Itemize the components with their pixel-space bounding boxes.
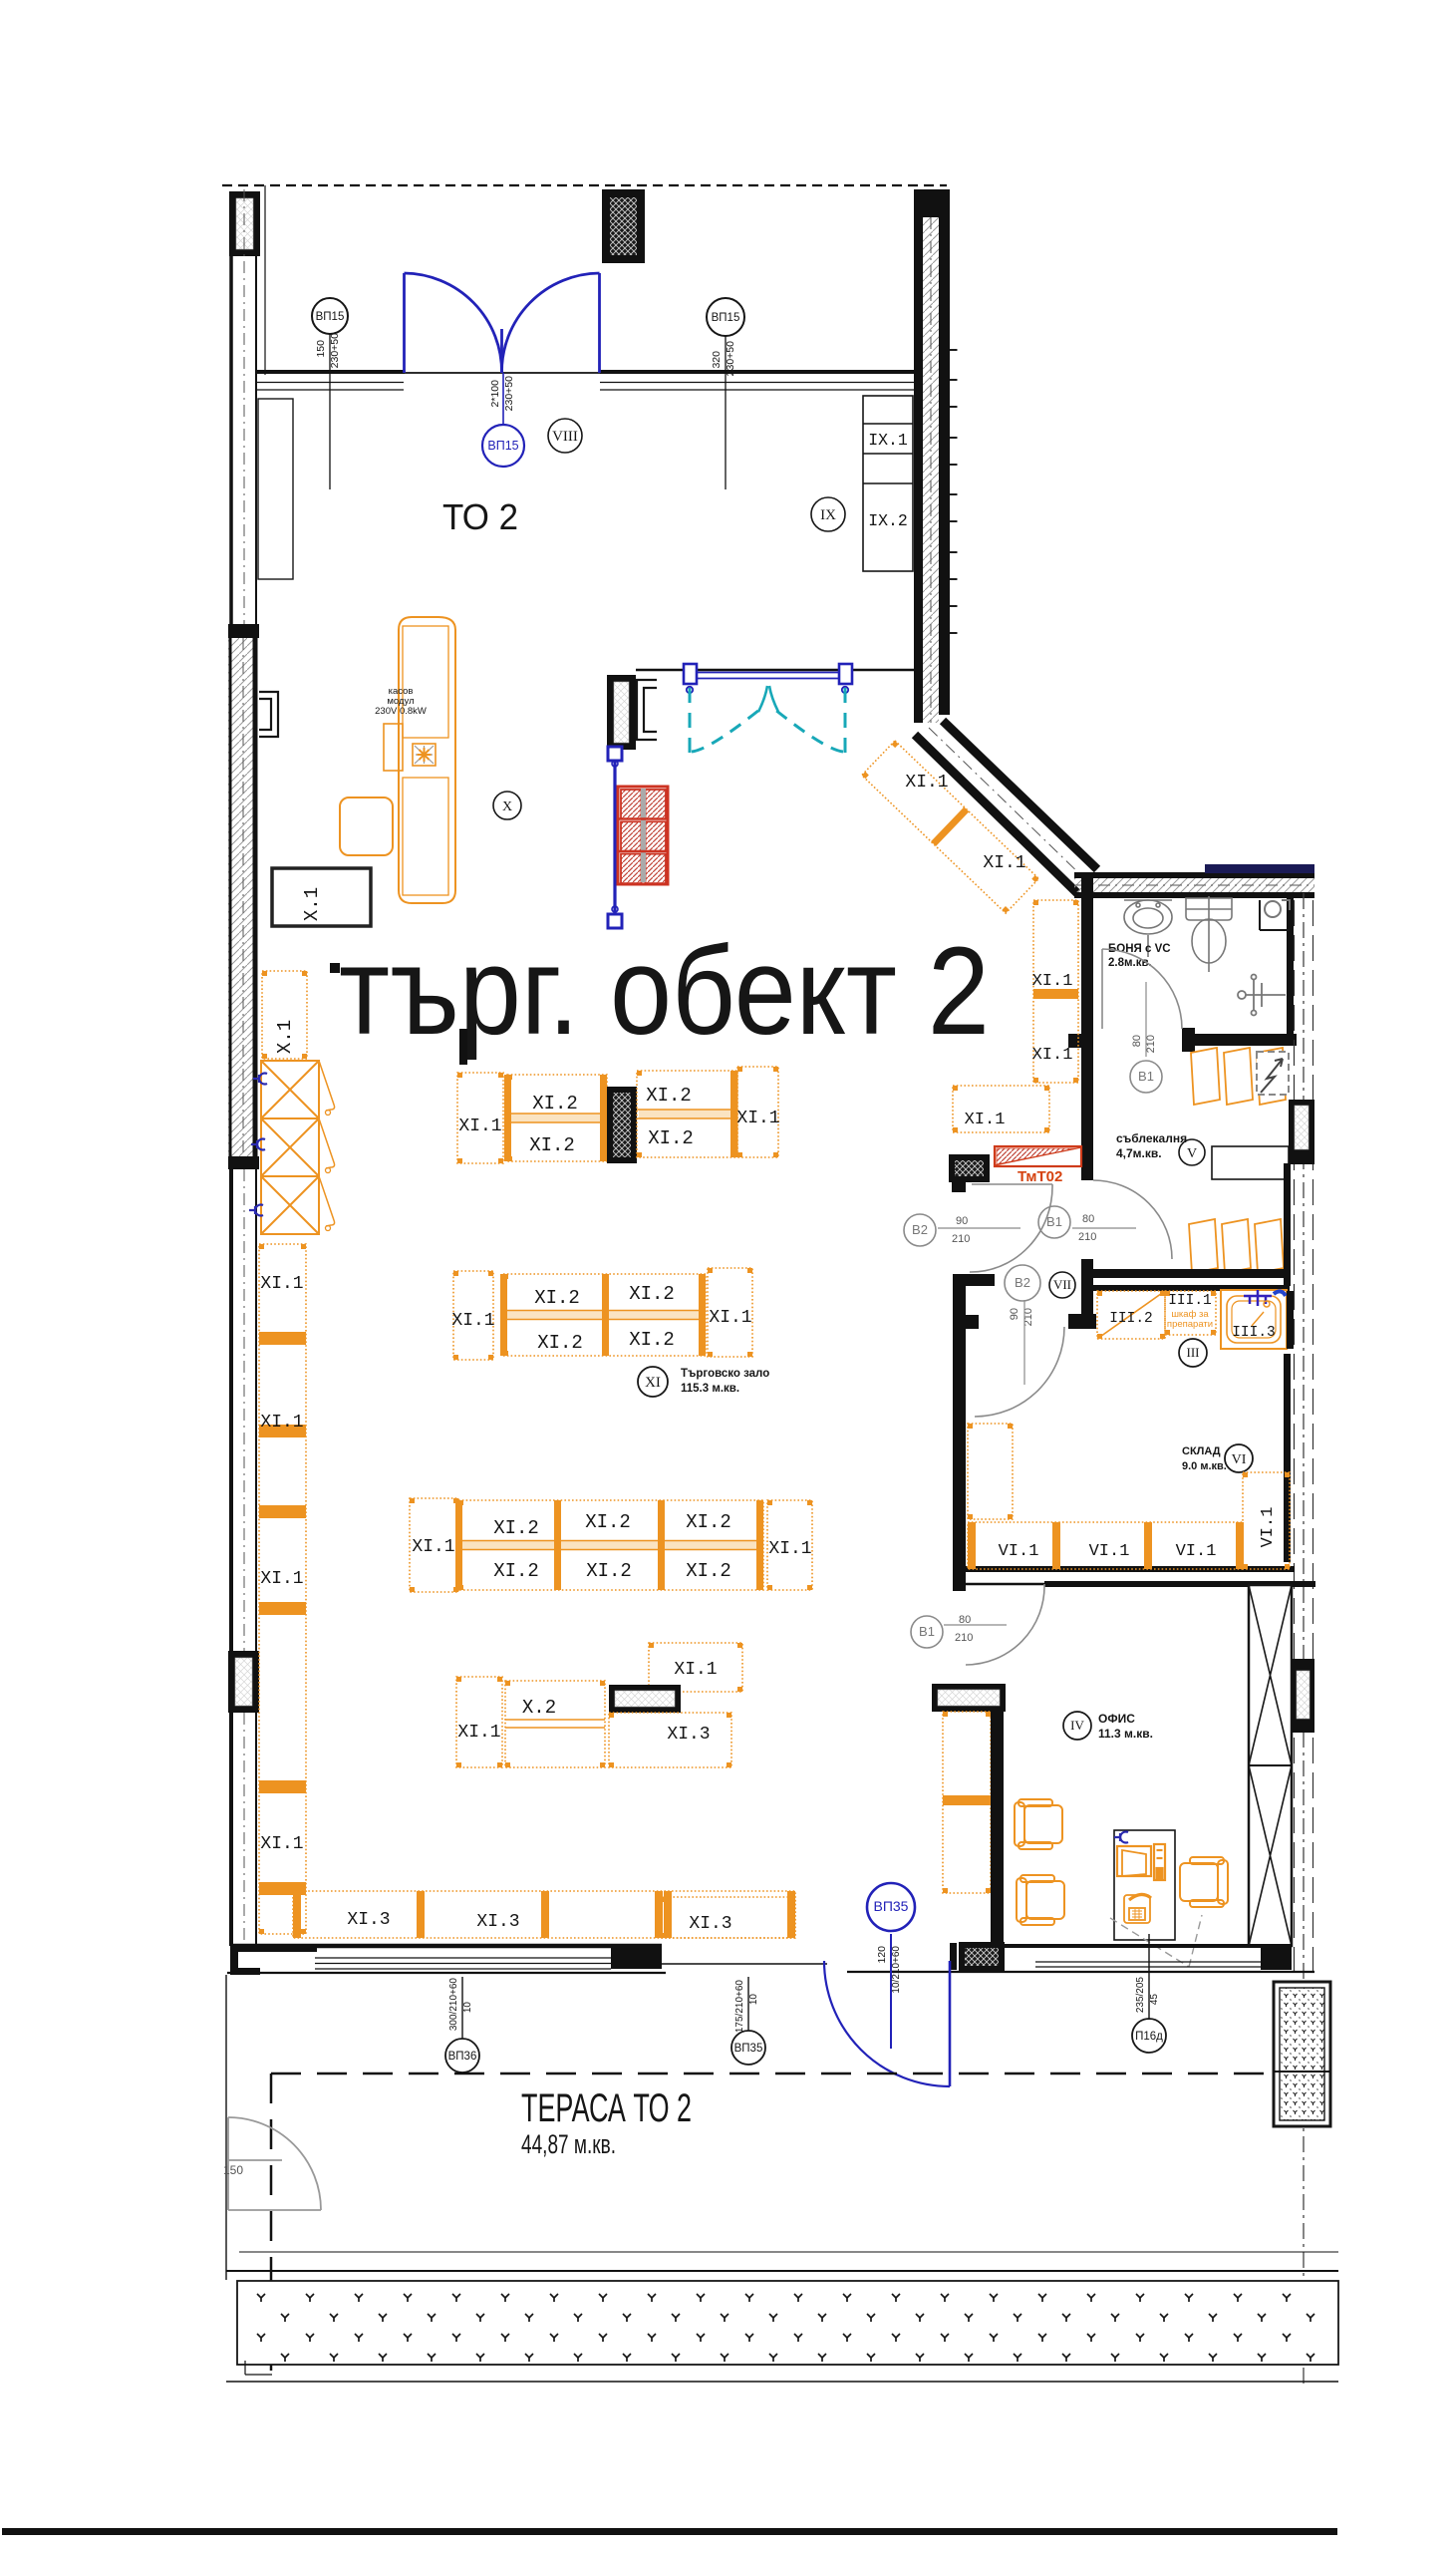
svg-text:320: 320 bbox=[711, 351, 723, 369]
svg-text:X: X bbox=[502, 799, 512, 814]
svg-text:XI.1: XI.1 bbox=[260, 1274, 303, 1294]
svg-text:XI.3: XI.3 bbox=[667, 1725, 710, 1745]
svg-text:XI.1: XI.1 bbox=[736, 1109, 779, 1128]
svg-text:IV: IV bbox=[1070, 1718, 1084, 1733]
svg-text:115.3 м.кв.: 115.3 м.кв. bbox=[681, 1383, 739, 1395]
svg-text:V: V bbox=[1187, 1146, 1197, 1161]
svg-text:ВП35: ВП35 bbox=[734, 2043, 763, 2055]
svg-text:B1: B1 bbox=[1046, 1214, 1062, 1229]
svg-text:230+50: 230+50 bbox=[503, 376, 515, 411]
svg-text:XI.1: XI.1 bbox=[412, 1537, 454, 1557]
svg-text:11.3 м.кв.: 11.3 м.кв. bbox=[1098, 1727, 1153, 1741]
svg-text:210: 210 bbox=[1078, 1231, 1096, 1243]
svg-text:ТмТ02: ТмТ02 bbox=[1018, 1168, 1062, 1185]
svg-text:III.3: III.3 bbox=[1232, 1325, 1276, 1341]
svg-text:XI.3: XI.3 bbox=[347, 1910, 390, 1930]
svg-text:210: 210 bbox=[955, 1632, 973, 1644]
svg-text:XI.2: XI.2 bbox=[493, 1517, 539, 1539]
svg-text:ВП36: ВП36 bbox=[448, 2051, 477, 2063]
svg-text:XI.1: XI.1 bbox=[709, 1308, 751, 1328]
svg-text:XI.2: XI.2 bbox=[585, 1511, 631, 1533]
svg-text:XI.2: XI.2 bbox=[648, 1127, 694, 1149]
svg-text:VIII: VIII bbox=[552, 429, 578, 445]
svg-text:ТЕРАСА ТО 2: ТЕРАСА ТО 2 bbox=[521, 2086, 692, 2130]
svg-text:10/210+60: 10/210+60 bbox=[891, 1946, 902, 1994]
svg-text:XI.2: XI.2 bbox=[686, 1560, 731, 1582]
svg-text:XI.2: XI.2 bbox=[532, 1093, 578, 1115]
svg-text:III.2: III.2 bbox=[1109, 1311, 1153, 1327]
svg-text:B2: B2 bbox=[912, 1222, 928, 1237]
svg-text:9.0 м.кв.: 9.0 м.кв. bbox=[1182, 1460, 1227, 1472]
svg-text:препарати: препарати bbox=[1167, 1319, 1213, 1330]
svg-text:XI.1: XI.1 bbox=[674, 1660, 717, 1680]
svg-text:XI.3: XI.3 bbox=[476, 1912, 519, 1932]
svg-text:СКЛАД: СКЛАД bbox=[1182, 1445, 1221, 1457]
svg-text:XI.1: XI.1 bbox=[260, 1413, 303, 1433]
svg-text:10: 10 bbox=[748, 1994, 759, 2006]
svg-text:XI.1: XI.1 bbox=[1032, 1046, 1073, 1065]
svg-text:XI.2: XI.2 bbox=[529, 1134, 575, 1156]
svg-text:ВП35: ВП35 bbox=[874, 1898, 909, 1914]
svg-text:XI.1: XI.1 bbox=[260, 1569, 303, 1589]
svg-text:Търговско зало: Търговско зало bbox=[681, 1368, 769, 1380]
svg-text:XI.1: XI.1 bbox=[451, 1311, 494, 1331]
svg-text:VI.1: VI.1 bbox=[1176, 1542, 1217, 1561]
svg-text:съблекалня: съблекалня bbox=[1116, 1131, 1187, 1145]
svg-text:XI.2: XI.2 bbox=[537, 1332, 583, 1354]
svg-text:230+50: 230+50 bbox=[725, 341, 736, 376]
svg-text:X.2: X.2 bbox=[522, 1697, 556, 1719]
svg-text:4,7м.кв.: 4,7м.кв. bbox=[1116, 1146, 1162, 1160]
svg-text:III.1: III.1 bbox=[1168, 1293, 1212, 1309]
svg-text:VI.1: VI.1 bbox=[999, 1542, 1039, 1561]
svg-text:210: 210 bbox=[1145, 1035, 1157, 1053]
svg-text:ВП15: ВП15 bbox=[712, 312, 740, 324]
svg-text:2.8м.кв.: 2.8м.кв. bbox=[1108, 957, 1152, 969]
svg-text:45: 45 bbox=[1149, 1994, 1160, 2006]
svg-text:2*100: 2*100 bbox=[489, 380, 501, 408]
svg-text:XI.3: XI.3 bbox=[689, 1914, 731, 1934]
svg-text:XI.1: XI.1 bbox=[768, 1539, 811, 1559]
svg-text:300/210+60: 300/210+60 bbox=[448, 1978, 459, 2032]
svg-text:XI.2: XI.2 bbox=[534, 1287, 580, 1309]
svg-text:XI.1: XI.1 bbox=[1032, 972, 1073, 991]
svg-text:БОНЯ с VC: БОНЯ с VC bbox=[1108, 943, 1171, 955]
svg-text:ОФИС: ОФИС bbox=[1098, 1712, 1135, 1726]
svg-text:VI: VI bbox=[1232, 1452, 1247, 1467]
svg-text:80: 80 bbox=[959, 1614, 971, 1626]
svg-text:XI.1: XI.1 bbox=[905, 773, 948, 793]
svg-text:44,87 м.кв.: 44,87 м.кв. bbox=[521, 2129, 616, 2159]
svg-text:XI.1: XI.1 bbox=[458, 1116, 501, 1136]
svg-text:150: 150 bbox=[223, 2163, 243, 2177]
svg-text:VI.1: VI.1 bbox=[1259, 1507, 1278, 1548]
svg-text:X.1: X.1 bbox=[301, 887, 323, 921]
svg-text:175/210+60: 175/210+60 bbox=[734, 1980, 745, 2034]
svg-text:VI.1: VI.1 bbox=[1089, 1542, 1130, 1561]
svg-text:XI.2: XI.2 bbox=[629, 1329, 675, 1351]
svg-text:IX.1: IX.1 bbox=[868, 431, 908, 450]
svg-text:ТО 2: ТО 2 bbox=[442, 496, 518, 537]
svg-text:VII: VII bbox=[1053, 1277, 1071, 1292]
svg-text:XI.1: XI.1 bbox=[260, 1834, 303, 1854]
svg-text:XI.1: XI.1 bbox=[983, 853, 1025, 873]
svg-text:XI.2: XI.2 bbox=[686, 1511, 731, 1533]
svg-text:XI.2: XI.2 bbox=[646, 1085, 692, 1107]
svg-text:210: 210 bbox=[952, 1233, 970, 1245]
svg-text:235/205: 235/205 bbox=[1135, 1977, 1146, 2014]
svg-text:търг. обект 2: търг. обект 2 bbox=[339, 922, 990, 1061]
svg-text:10: 10 bbox=[462, 2002, 473, 2014]
svg-text:150: 150 bbox=[315, 340, 327, 358]
svg-text:90: 90 bbox=[956, 1215, 968, 1227]
svg-text:90: 90 bbox=[1009, 1308, 1020, 1320]
svg-text:80: 80 bbox=[1082, 1213, 1094, 1225]
svg-text:230V 0.8kW: 230V 0.8kW bbox=[375, 706, 427, 717]
svg-text:80: 80 bbox=[1131, 1035, 1143, 1047]
svg-text:B2: B2 bbox=[1015, 1275, 1030, 1290]
svg-text:B1: B1 bbox=[919, 1624, 935, 1639]
svg-text:XI.1: XI.1 bbox=[965, 1111, 1006, 1129]
svg-text:XI.2: XI.2 bbox=[586, 1560, 632, 1582]
svg-text:ВП15: ВП15 bbox=[316, 311, 345, 323]
svg-text:120: 120 bbox=[876, 1946, 888, 1964]
svg-text:XI.1: XI.1 bbox=[457, 1723, 500, 1743]
svg-text:X.1: X.1 bbox=[274, 1020, 296, 1054]
svg-text:III: III bbox=[1187, 1345, 1200, 1360]
svg-text:IX.2: IX.2 bbox=[868, 511, 908, 530]
svg-text:230+50: 230+50 bbox=[329, 333, 341, 368]
svg-text:П16д: П16д bbox=[1135, 2031, 1163, 2043]
svg-text:IX: IX bbox=[820, 507, 836, 523]
svg-text:B1: B1 bbox=[1138, 1069, 1154, 1084]
svg-text:XI: XI bbox=[645, 1375, 661, 1391]
svg-text:XI.2: XI.2 bbox=[629, 1283, 675, 1305]
svg-text:ВП15: ВП15 bbox=[487, 439, 518, 453]
svg-text:XI.2: XI.2 bbox=[493, 1560, 539, 1582]
